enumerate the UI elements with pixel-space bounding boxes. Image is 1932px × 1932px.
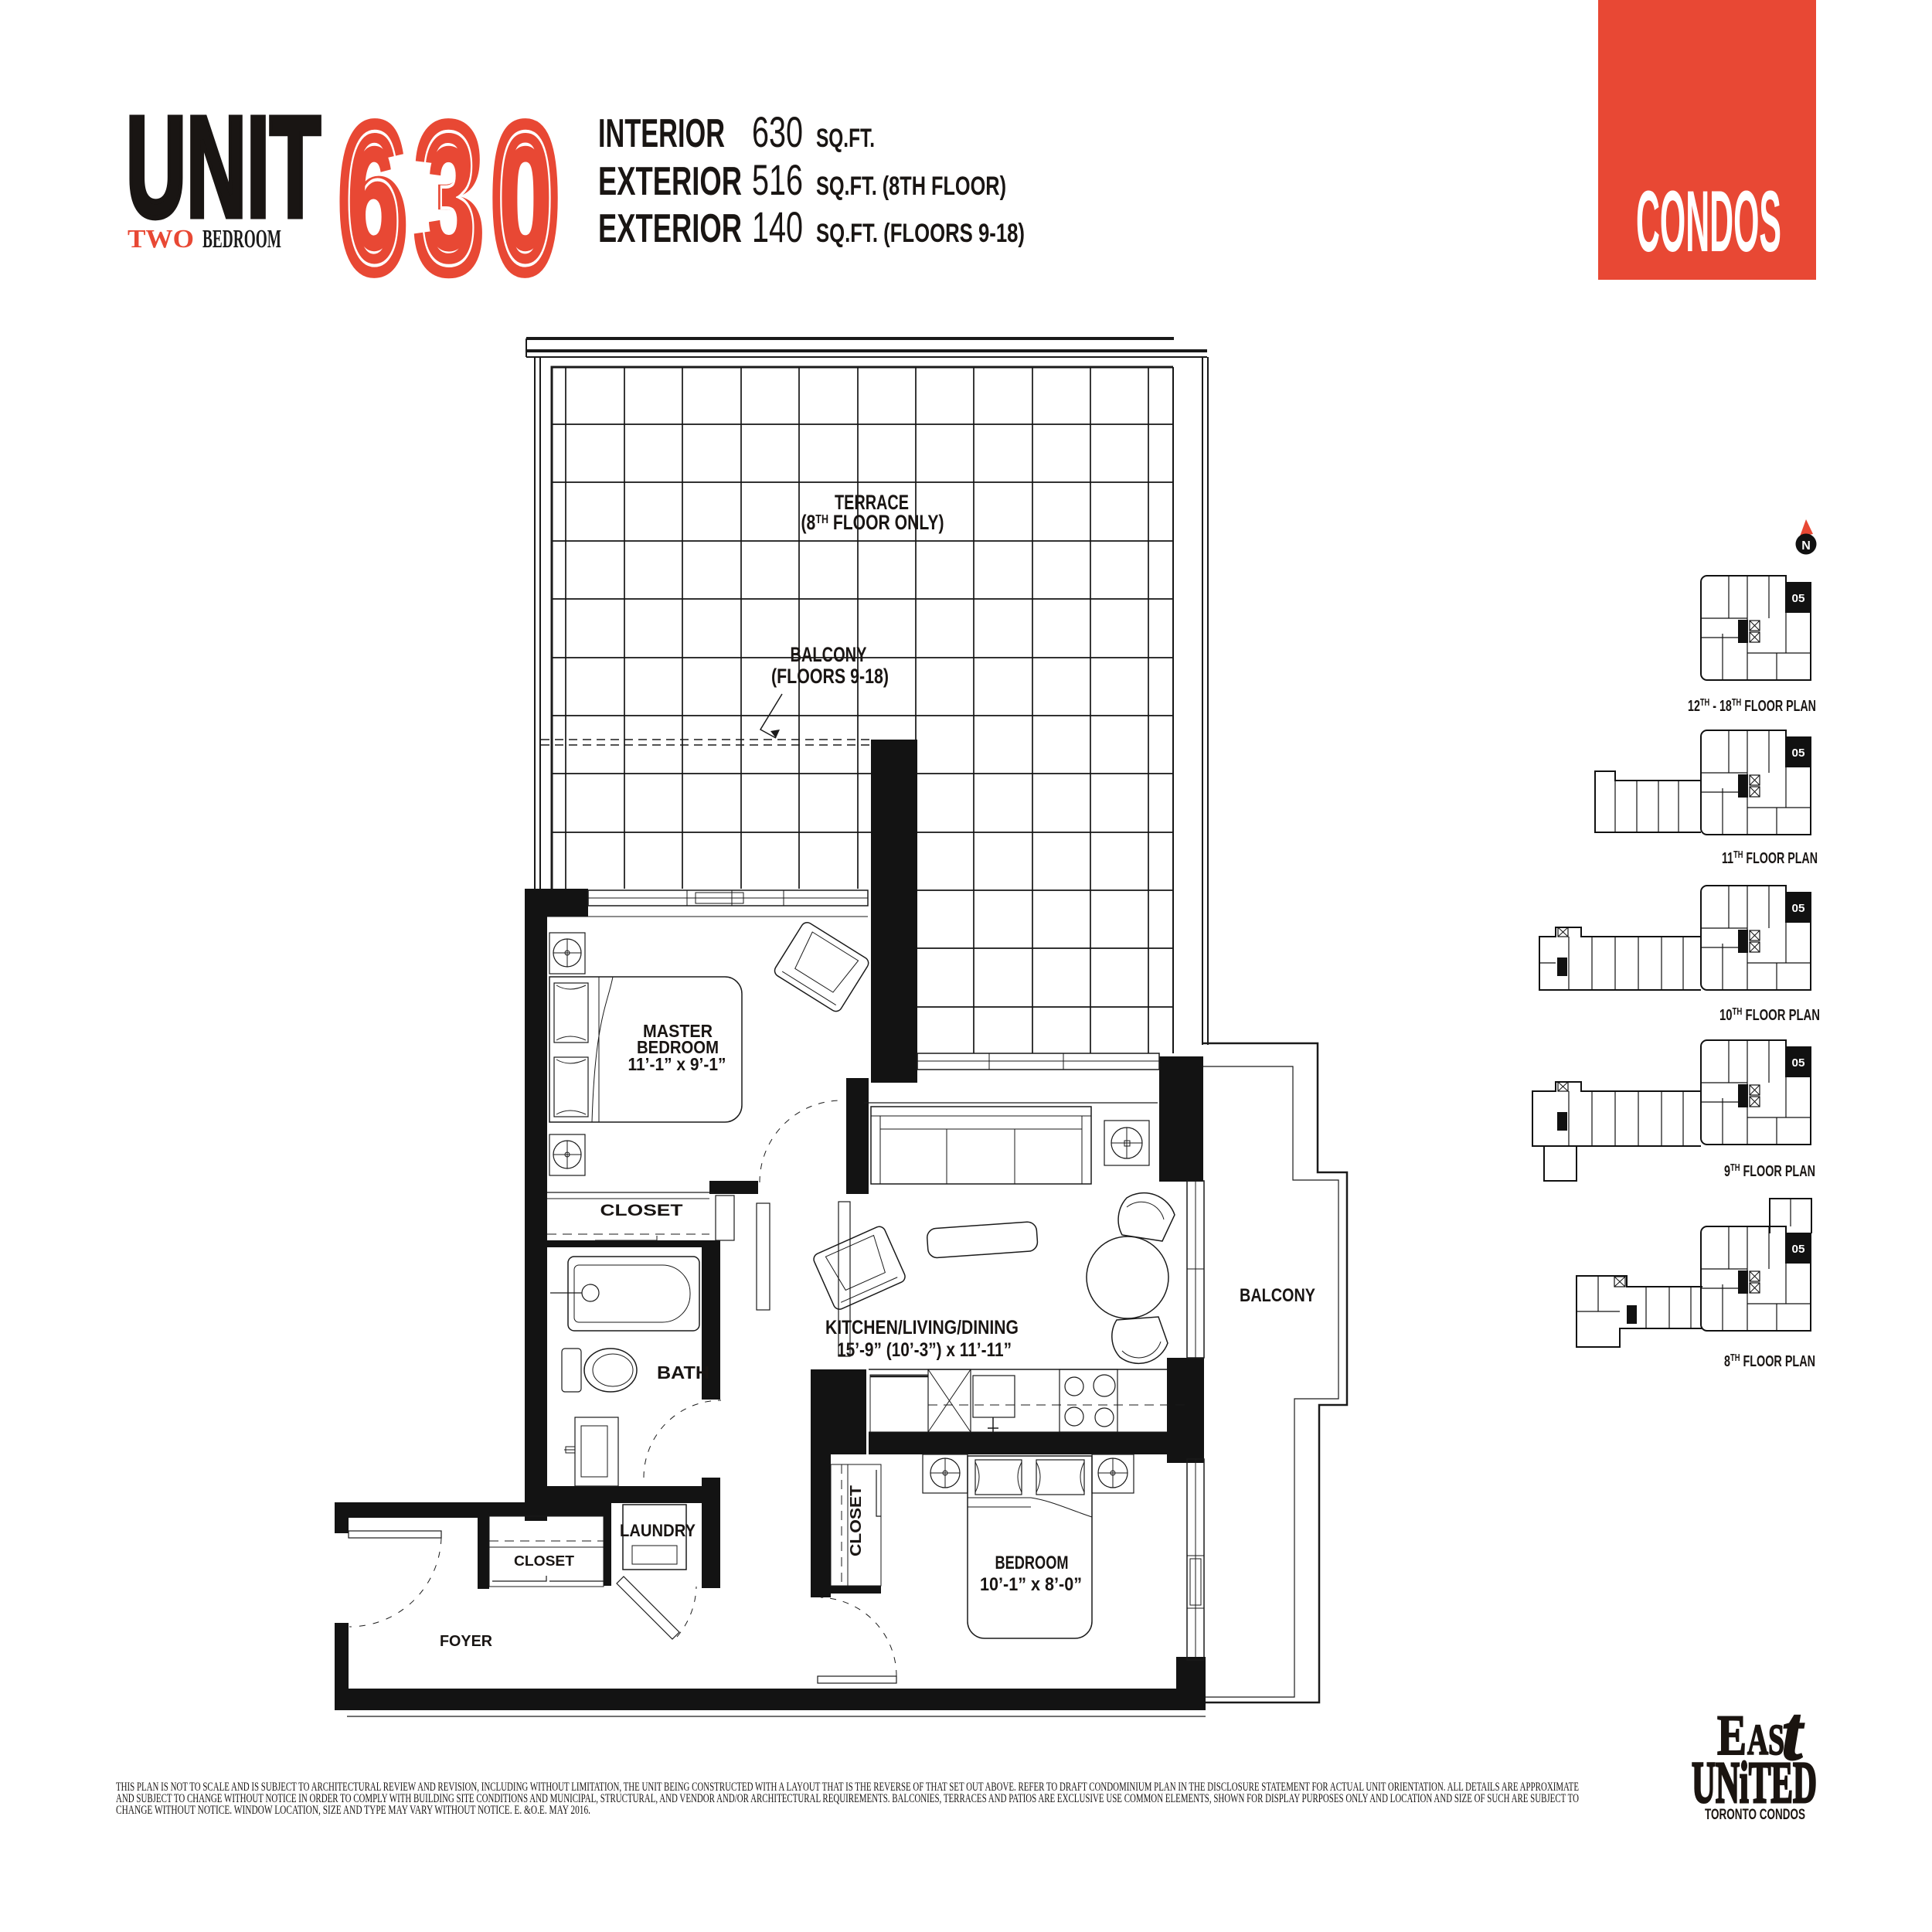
svg-text:TWO: TWO [128, 225, 194, 253]
svg-text:BEDROOM: BEDROOM [995, 1553, 1069, 1573]
svg-text:BEDROOM: BEDROOM [202, 225, 281, 253]
svg-text:CLOSET: CLOSET [514, 1553, 574, 1569]
svg-text:15’-9” (10’-3”) x 11’-11”: 15’-9” (10’-3”) x 11’-11” [837, 1339, 1012, 1361]
svg-text:0: 0 [503, 115, 548, 281]
svg-text:3: 3 [427, 115, 471, 281]
svg-text:BALCONY: BALCONY [1240, 1285, 1315, 1306]
svg-text:TORONTO CONDOS: TORONTO CONDOS [1705, 1807, 1805, 1823]
svg-text:EXTERIOR: EXTERIOR [598, 159, 742, 204]
svg-text:CLOSET: CLOSET [600, 1202, 683, 1219]
svg-text:630: 630 [752, 107, 803, 156]
svg-text:UNIT: UNIT [126, 87, 321, 247]
svg-text:KITCHEN/LIVING/DINING: KITCHEN/LIVING/DINING [825, 1317, 1019, 1338]
svg-text:EXTERIOR: EXTERIOR [598, 206, 742, 251]
svg-text:SQ.FT.: SQ.FT. [816, 124, 875, 153]
svg-text:SQ.FT. (FLOORS 9-18): SQ.FT. (FLOORS 9-18) [816, 219, 1025, 248]
svg-text:516: 516 [752, 155, 803, 204]
svg-text:6: 6 [352, 115, 396, 281]
svg-text:N: N [1801, 539, 1811, 553]
svg-text:BATH: BATH [657, 1362, 709, 1383]
svg-text:INTERIOR: INTERIOR [598, 111, 725, 156]
svg-text:140: 140 [752, 202, 803, 251]
svg-text:CLOSET: CLOSET [848, 1485, 865, 1556]
svg-text:LAUNDRY: LAUNDRY [620, 1521, 696, 1540]
svg-text:(FLOORS 9-18): (FLOORS 9-18) [771, 665, 889, 688]
svg-text:11’-1” x 9’-1”: 11’-1” x 9’-1” [628, 1054, 726, 1074]
svg-text:SQ.FT. (8TH FLOOR): SQ.FT. (8TH FLOOR) [816, 172, 1006, 201]
svg-text:FOYER: FOYER [440, 1633, 493, 1650]
svg-text:BALCONY: BALCONY [791, 643, 867, 666]
svg-text:CHANGE WITHOUT NOTICE. WINDOW: CHANGE WITHOUT NOTICE. WINDOW LOCATION, … [116, 1804, 590, 1817]
svg-text:UNiTED: UNiTED [1692, 1750, 1817, 1815]
svg-text:10’-1” x 8’-0”: 10’-1” x 8’-0” [980, 1574, 1082, 1595]
svg-text:CONDOS: CONDOS [1636, 173, 1781, 270]
